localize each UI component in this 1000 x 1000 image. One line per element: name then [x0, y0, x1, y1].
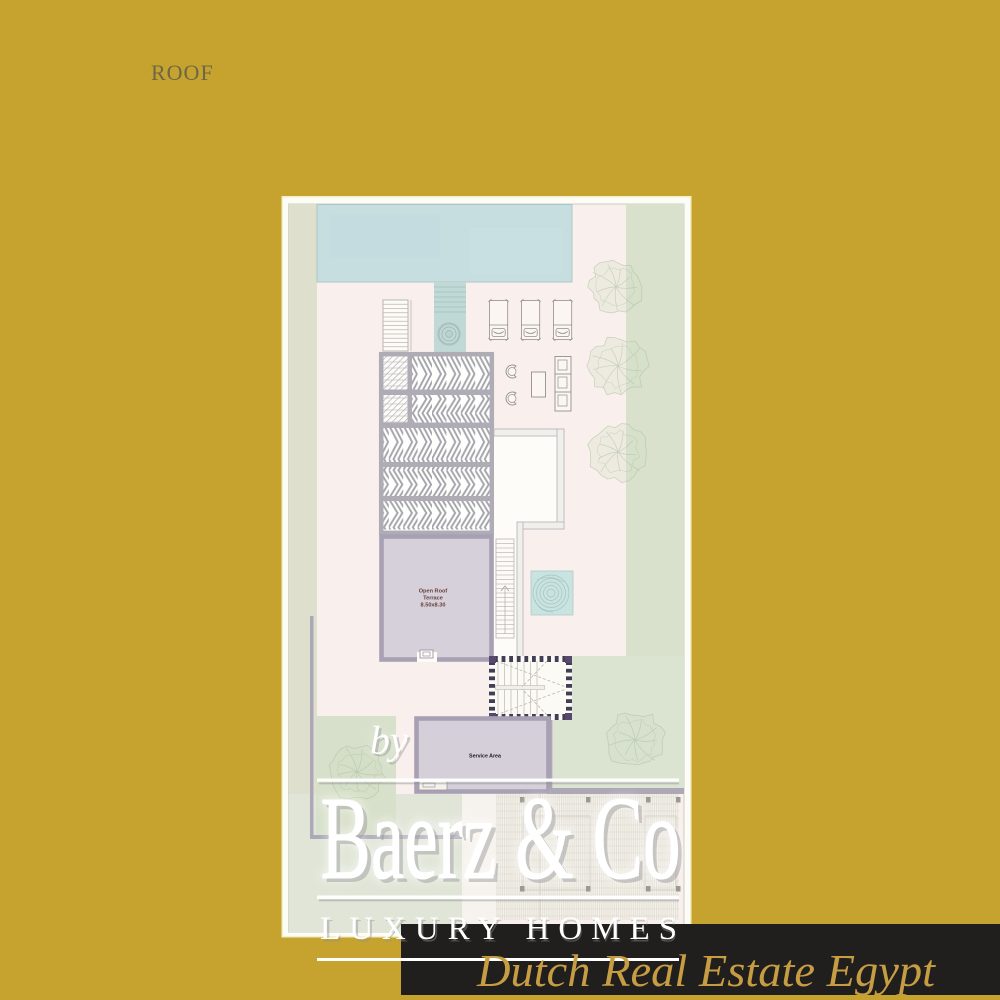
svg-text:by: by	[370, 718, 408, 763]
svg-text:ROOF: ROOF	[151, 60, 214, 85]
svg-text:Open Roof: Open Roof	[419, 589, 448, 595]
svg-text:Terrace: Terrace	[423, 596, 443, 602]
svg-text:8.50x8.30: 8.50x8.30	[421, 603, 446, 609]
svg-text:Baerz & Co: Baerz & Co	[321, 772, 681, 904]
svg-text:Dutch Real Estate Egypt: Dutch Real Estate Egypt	[476, 945, 936, 996]
svg-text:Service Area: Service Area	[469, 754, 501, 760]
